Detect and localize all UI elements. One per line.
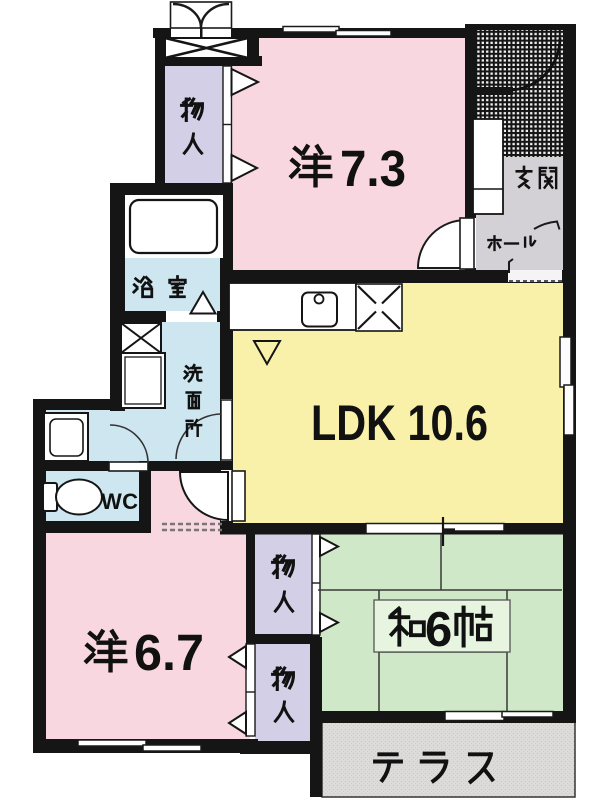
svg-text:6: 6 [425, 603, 452, 657]
svg-text:6.7: 6.7 [134, 624, 204, 681]
svg-text:7.3: 7.3 [340, 140, 406, 197]
svg-text:WC: WC [101, 489, 138, 514]
svg-text:LDK 10.6: LDK 10.6 [311, 395, 488, 451]
